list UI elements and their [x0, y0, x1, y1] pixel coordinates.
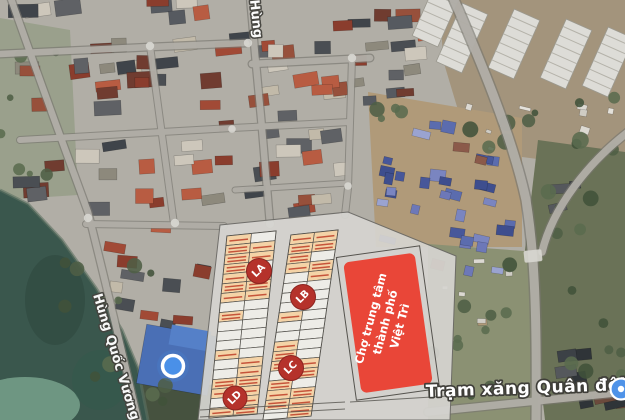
map-viewport[interactable]: Chợ trung tâm thành phố Việt Trì LA LB L…: [0, 0, 625, 420]
plot-marker-la: LA: [247, 259, 272, 284]
plot-marker-lb: LB: [291, 285, 316, 310]
land-plot-overlay: Chợ trung tâm thành phố Việt Trì LA LB L…: [198, 212, 456, 420]
current-location-dot: [157, 350, 189, 382]
satellite-map[interactable]: Chợ trung tâm thành phố Việt Trì LA LB L…: [0, 0, 625, 420]
plot-marker-lc: LC: [279, 356, 304, 381]
poi-icon[interactable]: [611, 379, 625, 400]
plot-marker-ld: LD: [223, 386, 247, 410]
